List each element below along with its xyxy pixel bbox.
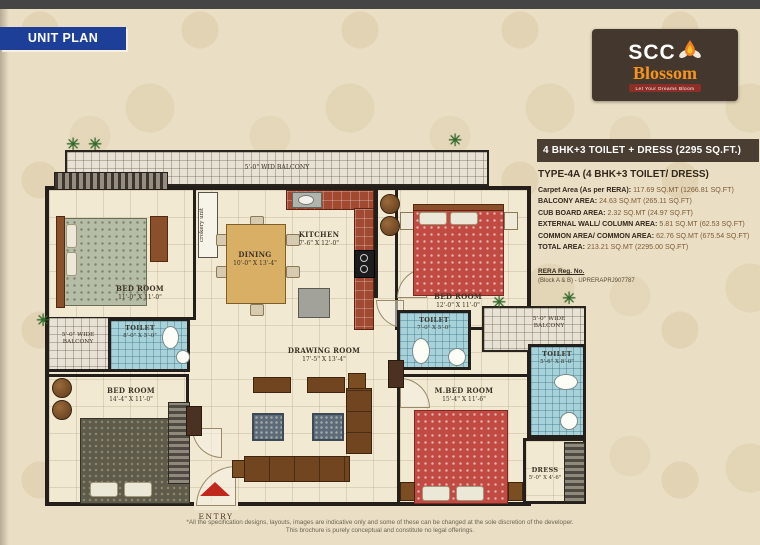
scc-blossom-logo: SCC Blossom Let Your Dreams Bloom <box>592 29 738 101</box>
bench <box>307 377 345 393</box>
master-bedroom-label: M.BED ROOM 15'-4" X 11'-6" <box>414 386 514 403</box>
pillow <box>90 482 118 497</box>
sofa <box>346 388 372 454</box>
logo-scc-text: SCC <box>628 43 675 63</box>
round-stool <box>52 400 72 420</box>
left-edge-shadow <box>0 9 9 545</box>
round-stool <box>380 194 400 214</box>
unit-plan-banner: UNIT PLAN <box>0 27 126 50</box>
toilet-wc <box>554 374 578 390</box>
plant-icon: ✳ <box>36 312 50 329</box>
logo-tagline: Let Your Dreams Bloom <box>629 84 700 92</box>
pillow <box>450 212 478 225</box>
wash-basin <box>176 350 190 364</box>
disclaimer-line-1: *All the specification designs, layouts,… <box>0 519 760 527</box>
wash-basin <box>448 348 466 366</box>
top-border-bar <box>0 0 760 9</box>
toilet-left-label: TOILET 8'-0" X 5'-0" <box>112 324 168 339</box>
logo-blossom-text: Blossom <box>633 65 697 81</box>
column <box>186 406 202 436</box>
pillow <box>124 482 152 497</box>
side-table <box>400 482 415 501</box>
sofa <box>244 456 350 482</box>
area-value: 117.69 SQ.MT (1266.81 SQ.FT) <box>631 186 734 194</box>
toilet-middle-label: TOILET 7'-0" X 5'-0" <box>402 316 466 331</box>
entry-arrow-icon <box>200 482 230 496</box>
area-value: 62.76 SQ.MT (675.54 SQ.FT) <box>654 232 749 240</box>
plant-icon: ✳ <box>88 136 102 153</box>
fridge <box>298 288 330 318</box>
pillow <box>456 486 484 501</box>
pillow <box>66 252 77 276</box>
floor-plan: ✳ ✳ ✳ ✳ ✳ ✳ 5'-0" WID BALCONY BED ROOM 1… <box>40 130 588 528</box>
cabinet <box>150 216 168 262</box>
balcony-left-label: 5'-0" WIDE BALCONY <box>50 332 106 346</box>
stove <box>354 250 375 278</box>
drawing-room-label: DRAWING ROOM 17'-5" X 13'-4" <box>276 346 372 363</box>
dining-chair <box>286 266 300 278</box>
plant-icon: ✳ <box>562 290 576 307</box>
plant-icon: ✳ <box>66 136 80 153</box>
dining-label: DINING 10'-0" X 13'-4" <box>220 250 290 267</box>
column <box>388 360 404 388</box>
toilet-right-label: TOILET 5'-6" X 8'-0" <box>530 350 584 365</box>
bed-headboard <box>413 204 504 211</box>
crockery-unit: crokery unit <box>198 192 218 258</box>
area-value: 213.21 SQ.MT (2295.00 SQ.FT) <box>585 243 688 251</box>
bedroom-3-label: BED ROOM 14'-4" X 11'-0" <box>76 386 186 403</box>
brochure-page: { "icons": { "plant": "✳" }, "colors": {… <box>0 0 760 545</box>
kitchen-wall <box>374 190 378 298</box>
bench <box>253 377 291 393</box>
pillow <box>422 486 450 501</box>
kitchen-sink <box>292 192 322 208</box>
duct-hatch <box>54 172 168 190</box>
wash-basin <box>560 412 578 430</box>
area-value: 24.63 SQ.MT (265.11 SQ.FT) <box>597 197 692 205</box>
round-stool <box>380 216 400 236</box>
dress-label: DRESS 5'-0" X 4'-6" <box>522 466 568 481</box>
plant-icon: ✳ <box>492 294 506 311</box>
rug <box>312 413 344 441</box>
area-value: 5.81 SQ.MT (62.53 SQ.FT) <box>657 220 744 228</box>
balcony-right-label: 5'-0" WIDE BALCONY <box>518 316 580 330</box>
disclaimer: *All the specification designs, layouts,… <box>0 519 760 535</box>
disclaimer-line-2: This brochure is purely conceptual and c… <box>0 527 760 535</box>
bedroom-1-label: BED ROOM 11'-0" X 11'-0" <box>90 284 190 301</box>
dining-chair <box>250 304 264 316</box>
toilet-wc <box>412 338 430 364</box>
bedroom-2-label: BED ROOM 12'-0" X 11'-0" <box>412 292 504 309</box>
round-stool <box>52 378 72 398</box>
side-table <box>508 482 523 501</box>
area-value: 2.32 SQ.MT (24.97 SQ.FT) <box>606 209 693 217</box>
side-table <box>504 212 518 230</box>
pillow <box>419 212 447 225</box>
entry-label: ENTRY <box>184 512 248 521</box>
side-table <box>400 212 414 230</box>
plant-icon: ✳ <box>448 132 462 149</box>
bed-headboard <box>56 216 65 308</box>
rug <box>252 413 284 441</box>
kitchen-label: KITCHEN 7'-6" X 12'-0" <box>288 230 350 247</box>
pillow <box>66 224 77 248</box>
